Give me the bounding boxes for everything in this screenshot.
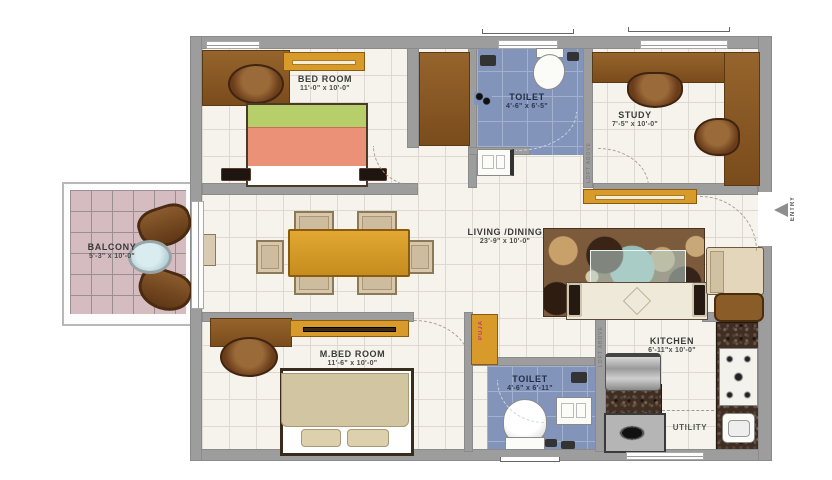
window <box>640 40 728 49</box>
console-shelf <box>583 189 697 204</box>
room-dims: 6'-11"x 10'-0" <box>622 347 722 354</box>
geyser-base <box>505 437 545 450</box>
entry-label: ENTRY <box>790 196 796 221</box>
drain-icon <box>545 439 557 447</box>
room-label-balcony: BALCONY 5'-3" x 10'-0" <box>70 242 154 260</box>
refrigerator <box>605 353 661 391</box>
room-dims: 7'-5" x 10'-0" <box>585 121 685 128</box>
room-dims: 4'-6" x 6'-11" <box>480 385 580 392</box>
room-label-living: LIVING /DINING 23'-9" x 10'-0" <box>445 227 565 245</box>
corridor-wardrobe <box>419 52 470 146</box>
shower-icon <box>480 55 496 66</box>
utility-divider <box>662 410 714 411</box>
room-label-study: STUDY 7'-5" x 10'-0" <box>585 110 685 128</box>
room-name: UTILITY <box>655 423 725 432</box>
room-dims: 23'-9" x 10'-0" <box>445 238 565 245</box>
washing-machine <box>604 413 666 453</box>
armchair <box>706 247 764 295</box>
coffee-table <box>590 250 686 285</box>
room-label-master-bedroom: M.BED ROOM 11'-6" x 10'-0" <box>295 349 410 367</box>
study-chair <box>694 118 740 156</box>
room-label-toilet-bottom: TOILET 4'-6" x 6'-11" <box>480 374 580 392</box>
entry-arrow-icon <box>774 203 788 217</box>
room-dims: 11'-6" x 10'-0" <box>295 360 410 367</box>
dimension-bar <box>628 27 730 32</box>
gas-stove <box>719 348 758 406</box>
study-chair <box>627 72 683 108</box>
room-label-kitchen: KITCHEN 6'-11"x 10'-0" <box>622 336 722 354</box>
pillow <box>301 429 341 447</box>
dimension-bar <box>482 29 574 34</box>
floor-plan: PUJA ENTRY <box>0 0 832 480</box>
sofa-cushion <box>623 287 651 315</box>
dining-table <box>288 229 410 277</box>
room-name: TOILET <box>477 92 577 102</box>
window <box>206 41 260 49</box>
drain-icon <box>561 441 575 449</box>
room-label-bedroom: BED ROOM 11'-0" x 10'-0" <box>270 74 380 92</box>
entry-opening <box>758 192 772 246</box>
room-name: BED ROOM <box>270 74 380 84</box>
dresser <box>290 320 409 337</box>
tv-unit <box>202 234 216 266</box>
puja-cabinet <box>471 314 498 365</box>
desk-chair <box>220 337 278 377</box>
window <box>626 452 704 460</box>
balcony-sliding-door <box>191 201 204 309</box>
puja-label: PUJA <box>478 320 484 340</box>
sofa <box>566 282 708 320</box>
room-name: LIVING /DINING <box>445 227 565 237</box>
ottoman <box>714 293 764 322</box>
room-name: M.BED ROOM <box>295 349 410 359</box>
wall <box>407 48 419 148</box>
dining-chair <box>256 240 284 274</box>
sofa-arm <box>567 283 582 317</box>
nightstand <box>221 168 251 181</box>
wash-basin <box>477 149 514 176</box>
wash-basin <box>556 397 592 425</box>
bed <box>280 368 414 456</box>
kitchen-sink <box>722 413 755 443</box>
loft-annotation: LOFT ABOVE <box>586 142 592 183</box>
dining-chair <box>406 240 434 274</box>
room-name: KITCHEN <box>622 336 722 346</box>
room-label-utility: UTILITY <box>655 423 725 432</box>
bed <box>246 103 368 187</box>
sofa-arm <box>692 283 707 317</box>
room-dims: 4'-6" x 6'-5" <box>477 103 577 110</box>
room-name: BALCONY <box>70 242 154 252</box>
loft-annotation: LOFT ABOVE <box>598 326 604 367</box>
pillow <box>347 429 389 447</box>
dimension-bar <box>500 457 560 462</box>
room-dims: 11'-0" x 10'-0" <box>270 85 380 92</box>
room-label-toilet-top: TOILET 4'-6" x 6'-5" <box>477 92 577 110</box>
tap-icon <box>567 52 579 61</box>
dresser <box>283 52 365 71</box>
room-name: STUDY <box>585 110 685 120</box>
room-name: TOILET <box>480 374 580 384</box>
room-dims: 5'-3" x 10'-0" <box>70 253 154 260</box>
